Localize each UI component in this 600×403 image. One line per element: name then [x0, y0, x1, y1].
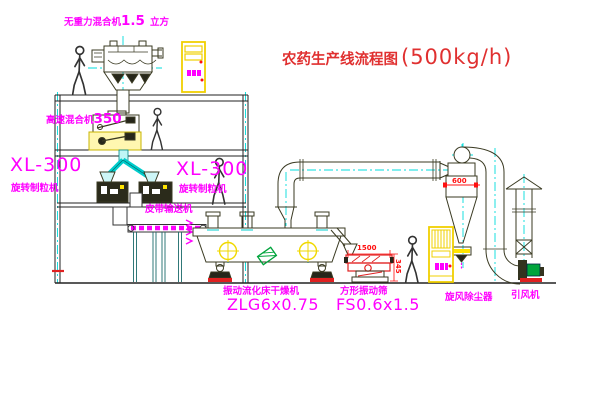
label-gravity-mixer: 无重力混合机1.5 立方 — [64, 12, 169, 29]
exhaust-duct — [275, 159, 448, 228]
label-cyclone: 旋风除尘器 — [445, 293, 493, 303]
label-granulator-left-model: XL-300 — [10, 156, 82, 175]
dim-screen-width: 1500 — [357, 245, 376, 252]
label-granulator-left-name: 旋转制粒机 — [11, 184, 59, 194]
dim-cyclone-width: 600 — [452, 178, 467, 185]
title-capacity: (500kg/h) — [401, 45, 512, 69]
title-text: 农药生产线流程图 — [282, 48, 398, 69]
person-icon — [73, 46, 86, 94]
control-cabinet-top — [182, 42, 205, 92]
person-icon — [406, 236, 418, 282]
page-title: 农药生产线流程图 (500kg/h) — [282, 45, 512, 69]
dryer-foot-left — [208, 262, 232, 282]
label-belt-conveyor: 皮带输送机 — [145, 205, 193, 215]
control-cabinet-right — [429, 227, 453, 282]
dryer-drawing — [193, 212, 345, 282]
granulator-support-column — [130, 193, 142, 207]
label-granulator-right-model: XL-300 — [176, 160, 248, 179]
label-fan: 引风机 — [511, 291, 540, 301]
label-screen-model: FS0.6x1.5 — [336, 297, 420, 313]
discharge-column — [113, 207, 127, 225]
label-dryer-model: ZLG6x0.75 — [227, 297, 319, 313]
label-high-speed-mixer: 高速混合机350 — [46, 110, 122, 127]
gravity-mixer-drawing — [92, 41, 163, 113]
cabinet-text-mark — [187, 70, 191, 76]
person-icon — [151, 108, 162, 149]
dryer-foot-right — [310, 262, 334, 282]
fan-drawing — [518, 260, 544, 282]
cad-flow-diagram: 农药生产线流程图 (500kg/h) 无重力混合机1.5 立方 高速混合机350… — [0, 0, 600, 403]
dim-screen-height: 345 — [394, 259, 401, 274]
cabinet-text-mark — [435, 263, 439, 270]
granulator-left-drawing — [97, 172, 128, 202]
conveyor-legs — [134, 232, 182, 282]
label-granulator-right-name: 旋转制粒机 — [179, 185, 227, 195]
